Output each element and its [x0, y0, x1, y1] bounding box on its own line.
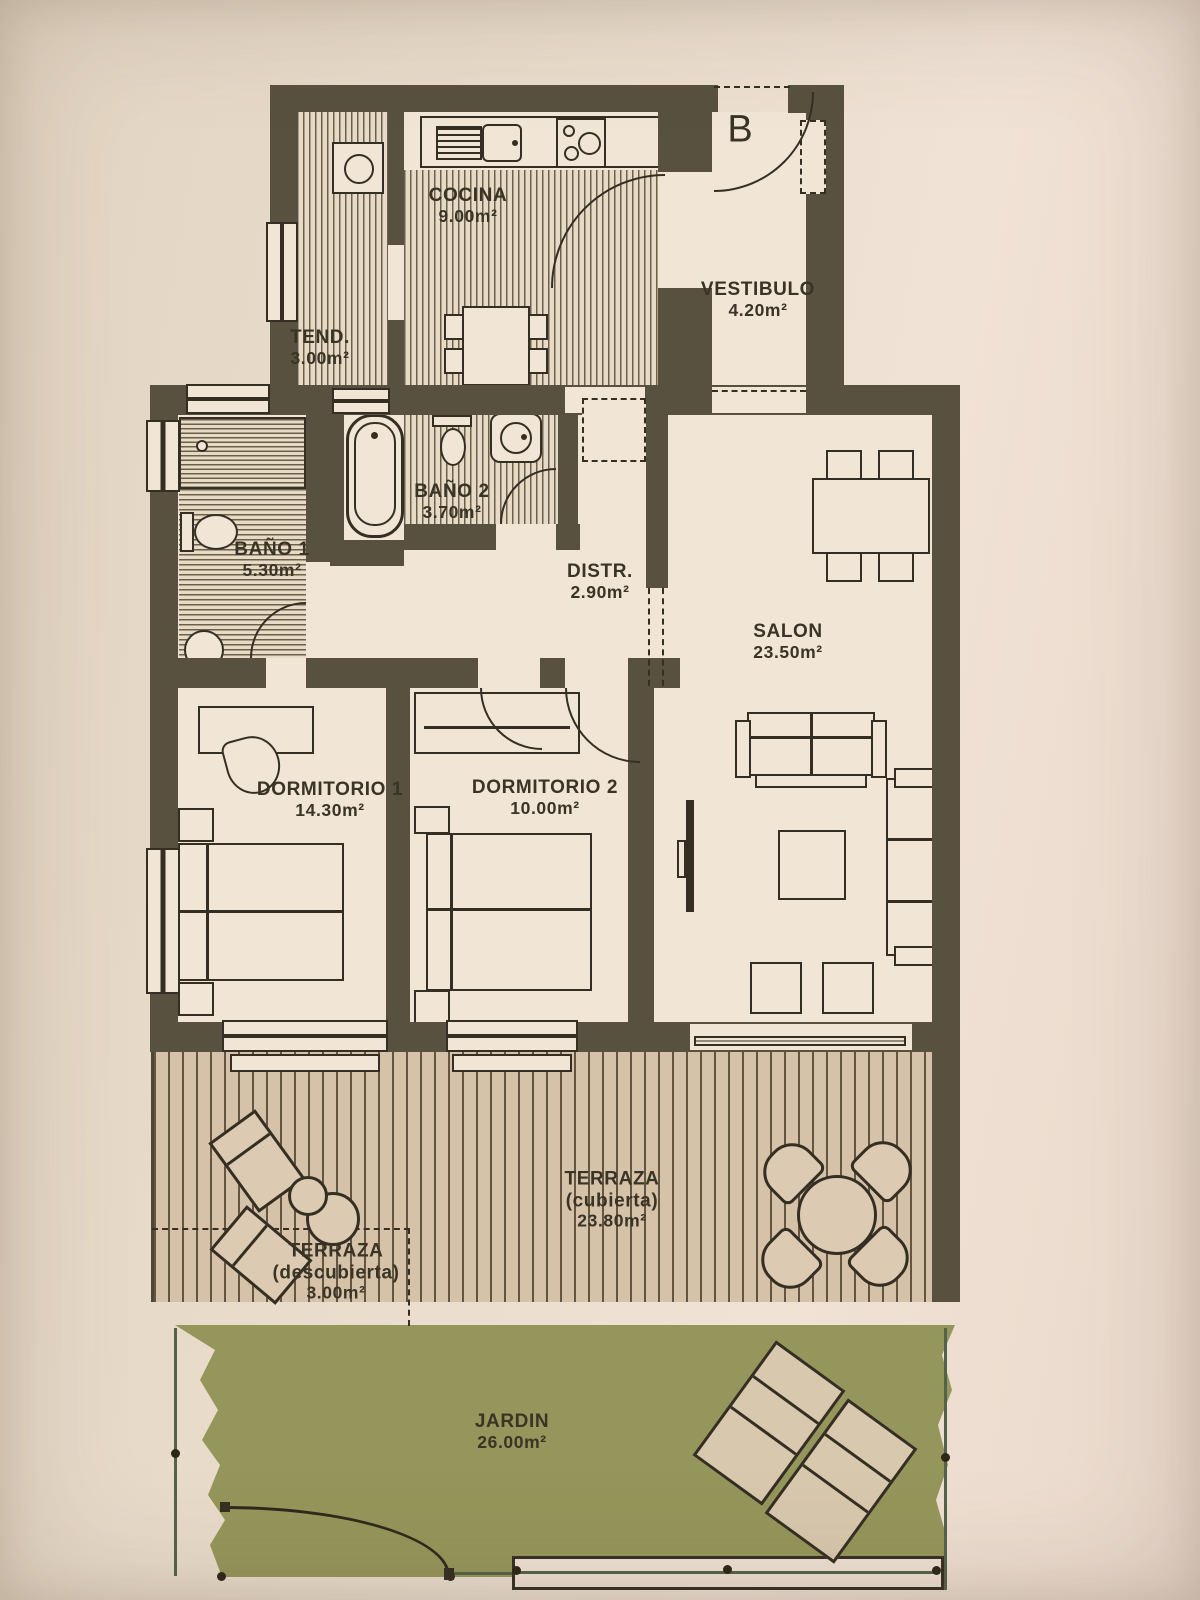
kitchen-chair	[528, 348, 548, 374]
toilet-bowl	[440, 428, 466, 466]
shower-drain	[196, 440, 208, 452]
dining-chair	[878, 550, 914, 582]
room-label-tendedero: TEND. 3.00m²	[290, 327, 350, 369]
dorm1-name: DORMITORIO 1	[257, 779, 403, 801]
wall-segment	[330, 540, 404, 566]
basin-dot	[521, 434, 527, 440]
wall-segment	[658, 110, 712, 172]
room-label-terraza-cubierta: TERRAZA (cubierta) 23.80m²	[565, 1168, 660, 1231]
sliding-glass-door	[694, 1036, 906, 1046]
sofa-seat-divider	[810, 714, 813, 774]
room-label-jardin: JARDIN 26.00m²	[475, 1411, 549, 1453]
hob-burner	[578, 132, 601, 155]
kitchen-chair	[528, 314, 548, 340]
dorm1-area: 14.30m²	[257, 801, 403, 821]
open-door-leaf	[686, 800, 694, 912]
dorm2-area: 10.00m²	[472, 799, 618, 819]
side-table	[288, 1176, 328, 1216]
terrace-descubierta-boundary	[152, 1228, 410, 1230]
dashed-opening	[712, 390, 806, 392]
hob-burner	[563, 125, 575, 137]
closet-dashed-box	[582, 398, 646, 462]
sofa-front-edge	[755, 774, 867, 788]
room-label-vestibulo: VESTIBULO 4.20m²	[701, 279, 815, 321]
room-label-terraza-descubierta: TERRAZA (descubierta) 3.00m²	[272, 1240, 399, 1303]
fence-post	[932, 1566, 941, 1575]
wall-segment	[932, 1052, 960, 1302]
entrance-letter: B	[727, 108, 752, 151]
dashed-passage	[648, 588, 650, 686]
distr-area: 2.90m²	[567, 583, 633, 603]
sofa-armrest	[735, 720, 751, 778]
room-label-dormitorio2: DORMITORIO 2 10.00m²	[472, 777, 618, 819]
fence-post	[512, 1566, 521, 1575]
pouf	[822, 962, 874, 1014]
toilet-bowl	[194, 514, 238, 550]
hob-burner	[564, 146, 579, 161]
cocina-name: COCINA	[429, 185, 508, 207]
shower-tray	[179, 417, 306, 489]
wall-segment	[388, 320, 404, 390]
vestibulo-name: VESTIBULO	[701, 279, 815, 301]
window	[446, 1020, 578, 1052]
gate-post	[220, 1502, 230, 1512]
window	[186, 384, 270, 414]
dashed-entry-line	[714, 86, 790, 88]
window	[266, 222, 298, 322]
tendedero-area: 3.00m²	[290, 349, 350, 369]
room-label-dormitorio1: DORMITORIO 1 14.30m²	[257, 779, 403, 821]
window	[332, 388, 390, 414]
window-sill	[452, 1054, 572, 1072]
wall-segment	[270, 85, 718, 112]
washing-machine-drum	[344, 154, 374, 184]
wall-segment	[628, 658, 680, 688]
room-label-bano1: BAÑO 1 5.30m²	[234, 539, 309, 581]
bano2-area: 3.70m²	[414, 503, 489, 523]
kitchen-chair	[444, 348, 464, 374]
wall-segment	[540, 658, 565, 688]
nightstand	[178, 982, 214, 1016]
bed-pillow-line	[450, 835, 453, 989]
coffee-table	[778, 830, 846, 900]
terraza2-area: 3.00m²	[272, 1284, 399, 1304]
dining-chair	[826, 550, 862, 582]
terraza-qualifier: (cubierta)	[565, 1190, 660, 1212]
nightstand	[414, 806, 450, 834]
dorm2-name: DORMITORIO 2	[472, 777, 618, 799]
door-handle	[677, 840, 686, 878]
terraza-name: TERRAZA	[565, 1168, 660, 1190]
bano1-area: 5.30m²	[234, 561, 309, 581]
wall-segment	[306, 390, 344, 562]
window	[146, 420, 180, 492]
bano1-name: BAÑO 1	[234, 539, 309, 561]
window	[222, 1020, 388, 1052]
salon-name: SALON	[753, 621, 823, 643]
floor-plan: JARDIN 26.00m² TERRAZA (cubierta) 23.80m…	[0, 0, 1200, 1600]
dashed-passage	[662, 588, 664, 686]
bed-center-line	[180, 910, 342, 913]
kitchen-sink-drainer	[436, 126, 482, 160]
washbasin-bowl	[500, 422, 532, 454]
wall-segment	[388, 110, 404, 245]
window	[146, 848, 180, 994]
garden-fence-bottom	[450, 1572, 516, 1575]
bano2-name: BAÑO 2	[414, 481, 489, 503]
gate-post	[444, 1568, 454, 1580]
terrace-descubierta-boundary	[408, 1228, 410, 1326]
wall-segment	[150, 658, 266, 688]
sofa-back-line	[749, 736, 873, 739]
salon-area: 23.50m²	[753, 643, 823, 663]
terraza-area: 23.80m²	[565, 1212, 660, 1232]
bathtub-drain-dot	[371, 432, 378, 439]
toilet-cistern	[432, 415, 472, 427]
sofa-armrest	[871, 720, 887, 778]
room-label-distr: DISTR. 2.90m²	[567, 561, 633, 603]
toilet-cistern	[180, 512, 194, 552]
wall-segment	[932, 385, 960, 1052]
jardin-name: JARDIN	[475, 1411, 549, 1433]
kitchen-chair	[444, 314, 464, 340]
terraza2-name: TERRAZA	[272, 1240, 399, 1262]
distr-name: DISTR.	[567, 561, 633, 583]
tendedero-name: TEND.	[290, 327, 350, 349]
jardin-area: 26.00m²	[475, 1433, 549, 1453]
round-table	[797, 1175, 877, 1255]
sink-drain-dot	[512, 140, 518, 146]
vestibulo-area: 4.20m²	[701, 301, 815, 321]
terrace-edge-line	[151, 1052, 154, 1302]
wall-segment	[386, 658, 410, 1052]
nightstand	[178, 808, 214, 842]
fence-post	[723, 1565, 732, 1574]
kitchen-table	[462, 306, 530, 386]
wall-segment	[404, 524, 496, 550]
wall-segment	[150, 385, 960, 415]
wall-segment	[646, 390, 668, 588]
pouf	[750, 962, 802, 1014]
fence-post	[171, 1449, 180, 1458]
cocina-area: 9.00m²	[429, 207, 508, 227]
window-sill	[230, 1054, 380, 1072]
nightstand	[414, 990, 450, 1024]
wall-segment	[556, 524, 580, 550]
bed-center-line	[428, 908, 590, 911]
dining-table	[812, 478, 930, 554]
fence-post	[941, 1453, 950, 1462]
room-label-bano2: BAÑO 2 3.70m²	[414, 481, 489, 523]
terraza2-qualifier: (descubierta)	[272, 1262, 399, 1284]
room-label-salon: SALON 23.50m²	[753, 621, 823, 663]
room-label-cocina: COCINA 9.00m²	[429, 185, 508, 227]
